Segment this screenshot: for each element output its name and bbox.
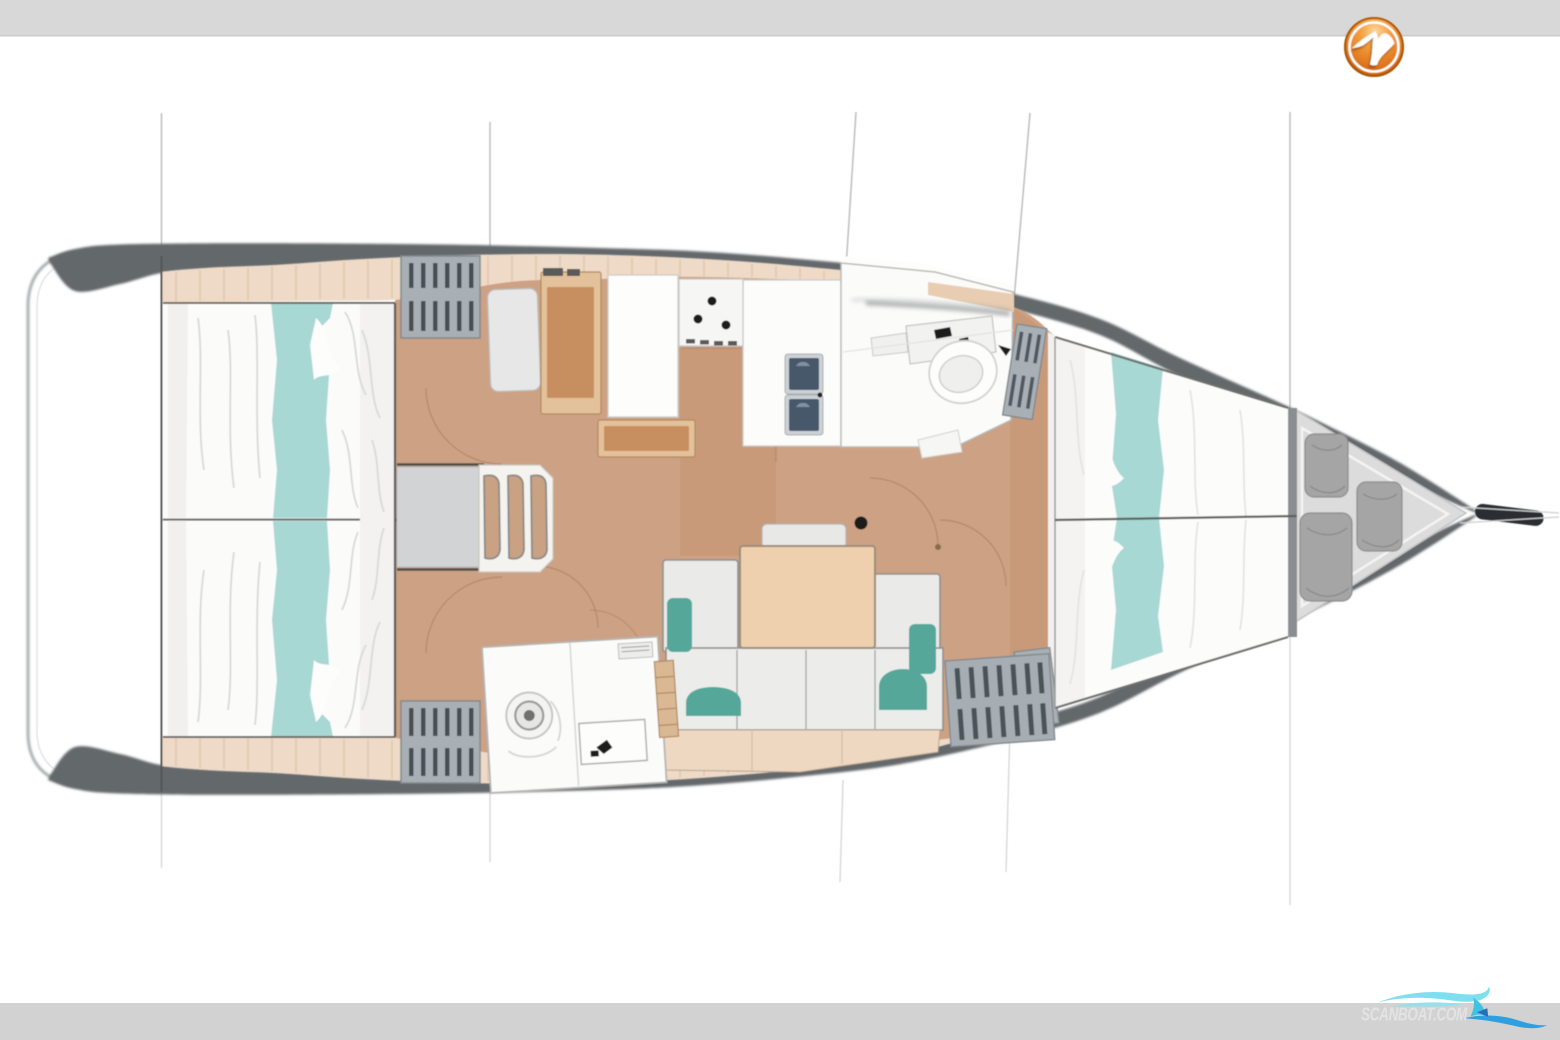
svg-text:SCANBOAT.COM: SCANBOAT.COM bbox=[1361, 1005, 1468, 1025]
